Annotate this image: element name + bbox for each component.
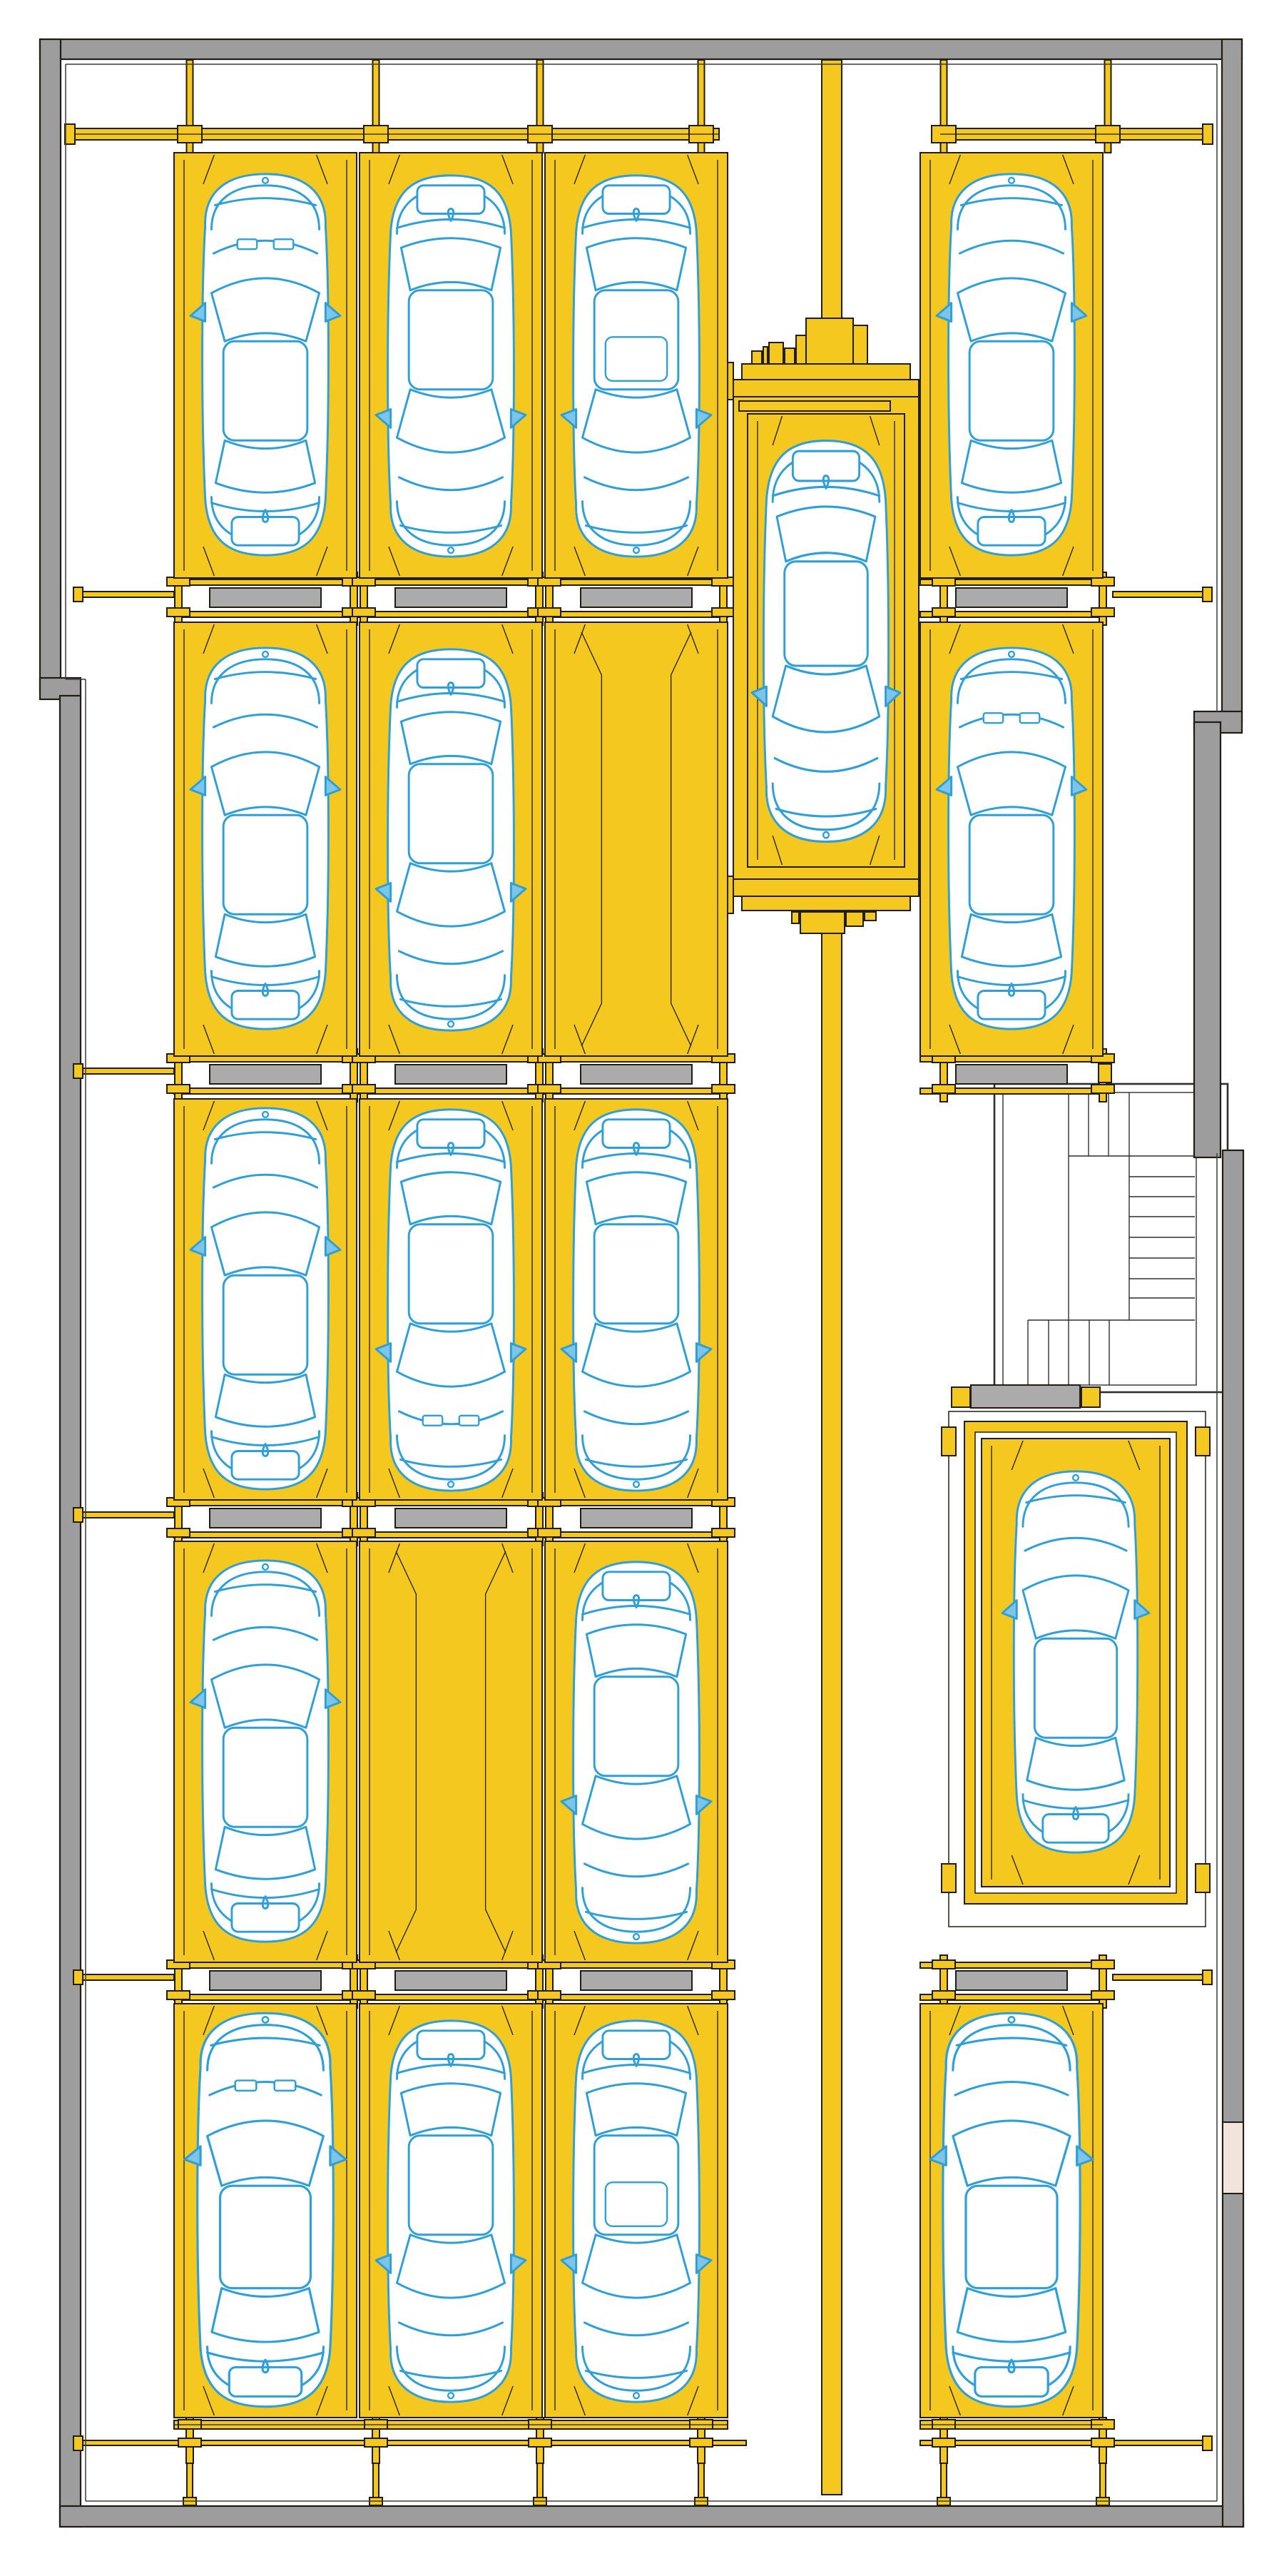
car [930,2013,1093,2406]
car-line [212,2288,319,2342]
car-line [582,1324,690,1386]
separator-gray-bar [581,588,692,607]
shuttle-machinery [800,912,845,933]
beam-wall-connector [73,587,83,602]
car-line [215,1827,315,1879]
floor-post [373,2463,379,2499]
shuttle-bottom-beam [733,879,919,896]
separator-wall-beam [83,1068,174,1074]
wall-right-upper [1222,39,1242,722]
car-line [586,1625,686,1677]
car-roof [966,2186,1057,2288]
separator-clamp [932,1960,955,1969]
separator-end-block [1099,1064,1111,1082]
separator-clamp [352,1528,375,1537]
platform-gray-bar-clamp [1081,1387,1100,1407]
car-front-marker [263,651,268,657]
car-line [215,440,315,492]
bottom-clamp [932,2438,955,2447]
car-front-marker [633,2393,639,2398]
car-roof [223,815,307,914]
wall-top [40,39,1242,59]
car-roof [409,290,493,390]
car-line [397,390,504,452]
pallet [545,622,728,1056]
car-line [208,2121,324,2186]
car [561,1110,711,1491]
car-roof [409,1224,493,1324]
beam-wall-connector [73,1970,83,1984]
floor-post [187,2463,193,2499]
car-line [401,2084,500,2136]
car-hood-vent [275,2081,296,2091]
car [376,649,526,1030]
bottom-clamp [529,2438,551,2447]
car-roof [223,1728,307,1827]
car [190,648,340,1029]
wall-left-upper [40,39,61,692]
shuttle-machinery [846,912,863,926]
separator-clamp [712,608,735,617]
car-roof [223,1275,307,1374]
shuttle-machinery [853,325,867,364]
car-front-marker [1009,2017,1015,2022]
shuttle-top-beam [733,380,919,397]
separator-clamp [712,1528,735,1537]
car-line [397,1324,504,1386]
car-line [586,238,686,290]
beam-wall-connector [1203,1970,1212,1984]
separator-wall-beam [83,1512,174,1518]
separator-gray-bar [210,1065,321,1084]
parking-floor-plan-page [0,0,1284,2576]
platform-corner-tab [1196,1864,1210,1892]
separator-bar [174,1088,728,1094]
shuttle-top-beam [742,364,910,380]
separator-clamp [352,1991,375,1999]
separator-clamp [1091,608,1114,617]
bottom-clamp [365,2438,387,2447]
car-line [586,1172,686,1224]
car-line [953,2121,1070,2186]
platform-corner-tab [942,1427,956,1456]
separator-gray-bar [395,1508,506,1528]
beam-wall-connector [65,124,75,144]
car-line [401,1172,500,1224]
car-line [773,666,880,732]
car-line [582,2235,690,2298]
separator-clamp [712,1085,735,1093]
pallet [360,1541,542,1962]
car-roof [594,1224,678,1324]
wall-bottom [60,2506,1243,2527]
car-front-marker [1009,651,1014,657]
shuttle-machinery [785,348,795,364]
car-line [211,1665,319,1728]
car-roof [969,815,1054,914]
car-sunroof [606,2182,667,2226]
car-hood-vent [235,2081,257,2091]
car-front-marker [1073,1475,1079,1481]
car-roof [969,341,1054,440]
car-line [397,2235,504,2298]
car [185,2013,346,2406]
car-roof [223,341,307,440]
separator-gray-bar [210,588,321,607]
car-front-marker [633,1934,639,1939]
wall-right-mid [1194,722,1221,1157]
pallet-surface [545,622,728,1056]
separator-gray-bar [581,1971,692,1990]
car [376,1110,526,1491]
car-front-marker [633,1481,639,1487]
separator-clamp [352,608,375,617]
shuttle-bottom-beam [742,896,910,911]
car-hood-vent [984,713,1003,723]
shuttle-machinery [865,912,876,921]
car-front-marker [823,832,829,838]
separator-clamp [932,1085,955,1093]
floor-post [698,2463,704,2499]
platform-gray-bar-clamp [952,1387,970,1407]
separator-clamp [932,1991,955,1999]
platform-corner-tab [942,1864,956,1892]
separator-gray-bar [581,1065,692,1084]
car [561,2021,711,2402]
separator-wall-beam [83,592,174,597]
car-front-marker [448,2393,454,2398]
bottom-clamp [1091,2438,1114,2447]
separator-clamp [1091,1991,1114,1999]
floor-post [1100,2463,1106,2499]
shuttle-machinery [792,912,799,923]
floor-post [941,2463,947,2499]
car-line [401,712,500,764]
car-front-marker [633,547,639,553]
car [561,176,711,557]
car-hood-vent [1020,713,1039,723]
car-hood-vent [238,239,257,249]
separator-clamp [167,1085,190,1093]
shuttle-machinery [763,347,768,364]
separator-clamp [167,608,190,617]
car-front-marker [448,1481,454,1487]
separator-gray-bar [395,1971,506,1990]
separator-gray-bar [395,1065,506,1084]
car-line [401,238,500,290]
separator-bar [174,1962,728,1968]
car [937,648,1086,1029]
separator-bar [174,1500,728,1506]
separator-clamp [1091,1085,1114,1093]
floor-post [537,2463,543,2499]
car-roof [785,562,868,666]
separator-clamp [1091,1960,1114,1969]
separator-clamp [538,1991,561,1999]
car-hood-vent [274,239,293,249]
separator-gray-bar [210,1971,321,1990]
separator-gray-bar [956,588,1067,607]
separator-clamp [538,1528,561,1537]
car-line [777,507,875,562]
car-front-marker [263,178,268,183]
car-hood-vent [459,1416,479,1426]
shuttle-machinery [806,318,853,364]
beam-wall-connector [1203,587,1212,602]
car-line [215,1374,315,1426]
car-line [962,440,1061,492]
car-line [957,278,1065,341]
car-sunroof [606,337,667,381]
car-line [211,1212,319,1275]
bottom-beam-thin [920,2440,1203,2445]
car [190,1561,340,1942]
car-line [586,2084,686,2136]
separator-bar [174,612,728,617]
beam-wall-connector [1203,124,1213,144]
car-line [957,2288,1065,2342]
car [376,176,526,557]
wall-door-opening [1223,2122,1243,2194]
separator-wall-beam [83,1974,174,1980]
wall-left-lower [60,696,81,2527]
beam-wall-connector [73,1064,83,1078]
wall-right-lower [1223,1150,1243,2527]
bottom-clamp [178,2438,201,2447]
separator-bar [174,579,728,585]
separator-clamp [167,1528,190,1537]
car-roof [594,1677,678,1776]
car-front-marker [263,1112,268,1117]
car-line [397,863,504,926]
car-line [582,1776,690,1839]
separator-gray-bar [210,1508,321,1528]
separator-gray-bar [581,1508,692,1528]
car-line [962,914,1061,966]
car-line [211,752,319,815]
car-line [582,390,690,452]
car-front-marker [1009,178,1014,183]
car [752,441,900,842]
separator-bar [174,1056,728,1062]
car-roof [409,2136,493,2235]
car-line [1027,1738,1125,1790]
separator-clamp [538,608,561,617]
separator-clamp [167,1991,190,1999]
pallet-surface [360,1541,542,1962]
car-front-marker [263,1564,268,1570]
car [561,1562,711,1943]
car [190,174,340,555]
car-line [1023,1576,1128,1638]
beam-wall-connector [1203,2436,1212,2450]
separator-wall-beam [1113,1974,1203,1980]
stair-room [994,1084,1228,1392]
car-roof [220,2186,311,2288]
bottom-clamp [690,2438,713,2447]
separator-gray-bar [956,1971,1067,1990]
platform-corner-tab [1196,1427,1210,1456]
separator-clamp [538,1085,561,1093]
separator-wall-beam [1113,592,1203,597]
separator-gray-bar [956,1065,1067,1084]
car [937,174,1086,555]
separator-bar [174,1532,728,1538]
car-roof [1034,1638,1116,1738]
shuttle-crossbar [739,401,890,411]
beam-wall-connector [73,2436,83,2450]
car-line [957,752,1065,815]
separator-bar [174,1994,728,2000]
beam-wall-connector [73,1508,83,1522]
car-front-marker [448,547,454,553]
car [376,2021,526,2402]
car-front-marker [448,1021,454,1027]
separator-clamp [352,1085,375,1093]
car-hood-vent [423,1416,442,1426]
platform-gray-bar [971,1385,1080,1408]
car [190,1108,340,1489]
shuttle-machinery [752,351,762,364]
car-front-marker [263,2017,268,2022]
separator-gray-bar [395,588,506,607]
shuttle-machinery [796,335,806,364]
car-line [215,914,315,966]
separator-clamp [712,1991,735,1999]
parking-floor-plan [0,0,1284,2576]
shuttle-machinery [769,343,783,364]
car [1002,1471,1149,1852]
car-line [211,278,319,341]
car-roof [409,764,493,863]
separator-clamp [932,608,955,617]
